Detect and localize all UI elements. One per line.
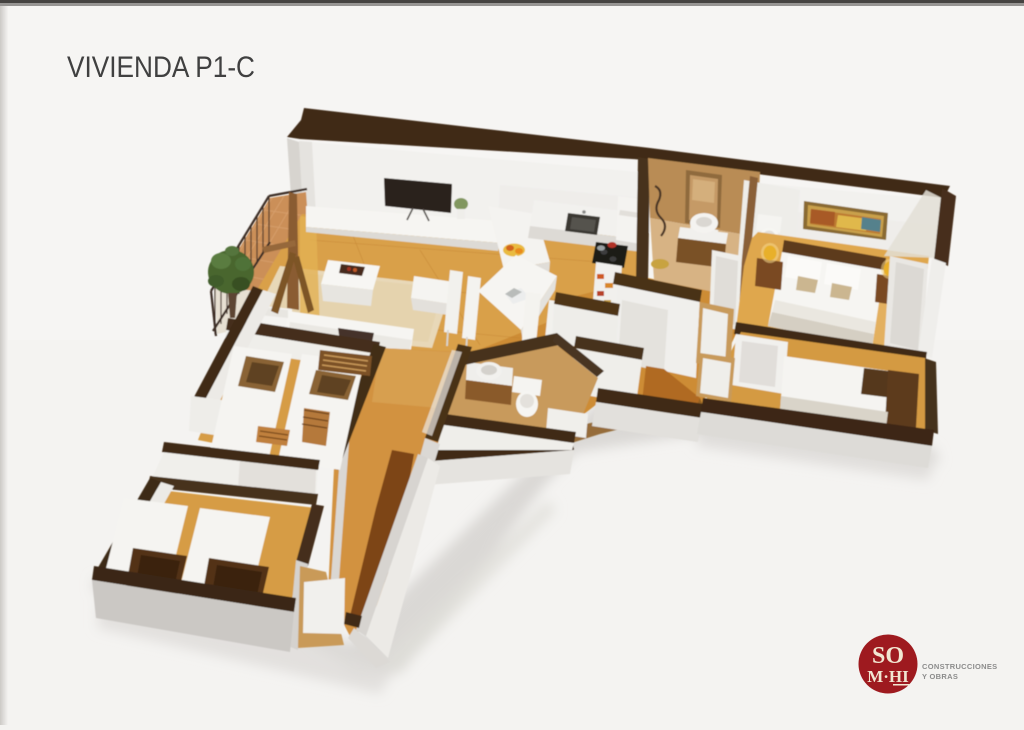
svg-text:M·HI: M·HI <box>867 667 909 686</box>
svg-text:Y OBRAS: Y OBRAS <box>922 672 958 681</box>
svg-text:SO: SO <box>872 643 904 669</box>
svg-text:VIVIENDA P1-C: VIVIENDA P1-C <box>67 51 255 84</box>
svg-text:CONSTRUCCIONES: CONSTRUCCIONES <box>922 662 997 671</box>
